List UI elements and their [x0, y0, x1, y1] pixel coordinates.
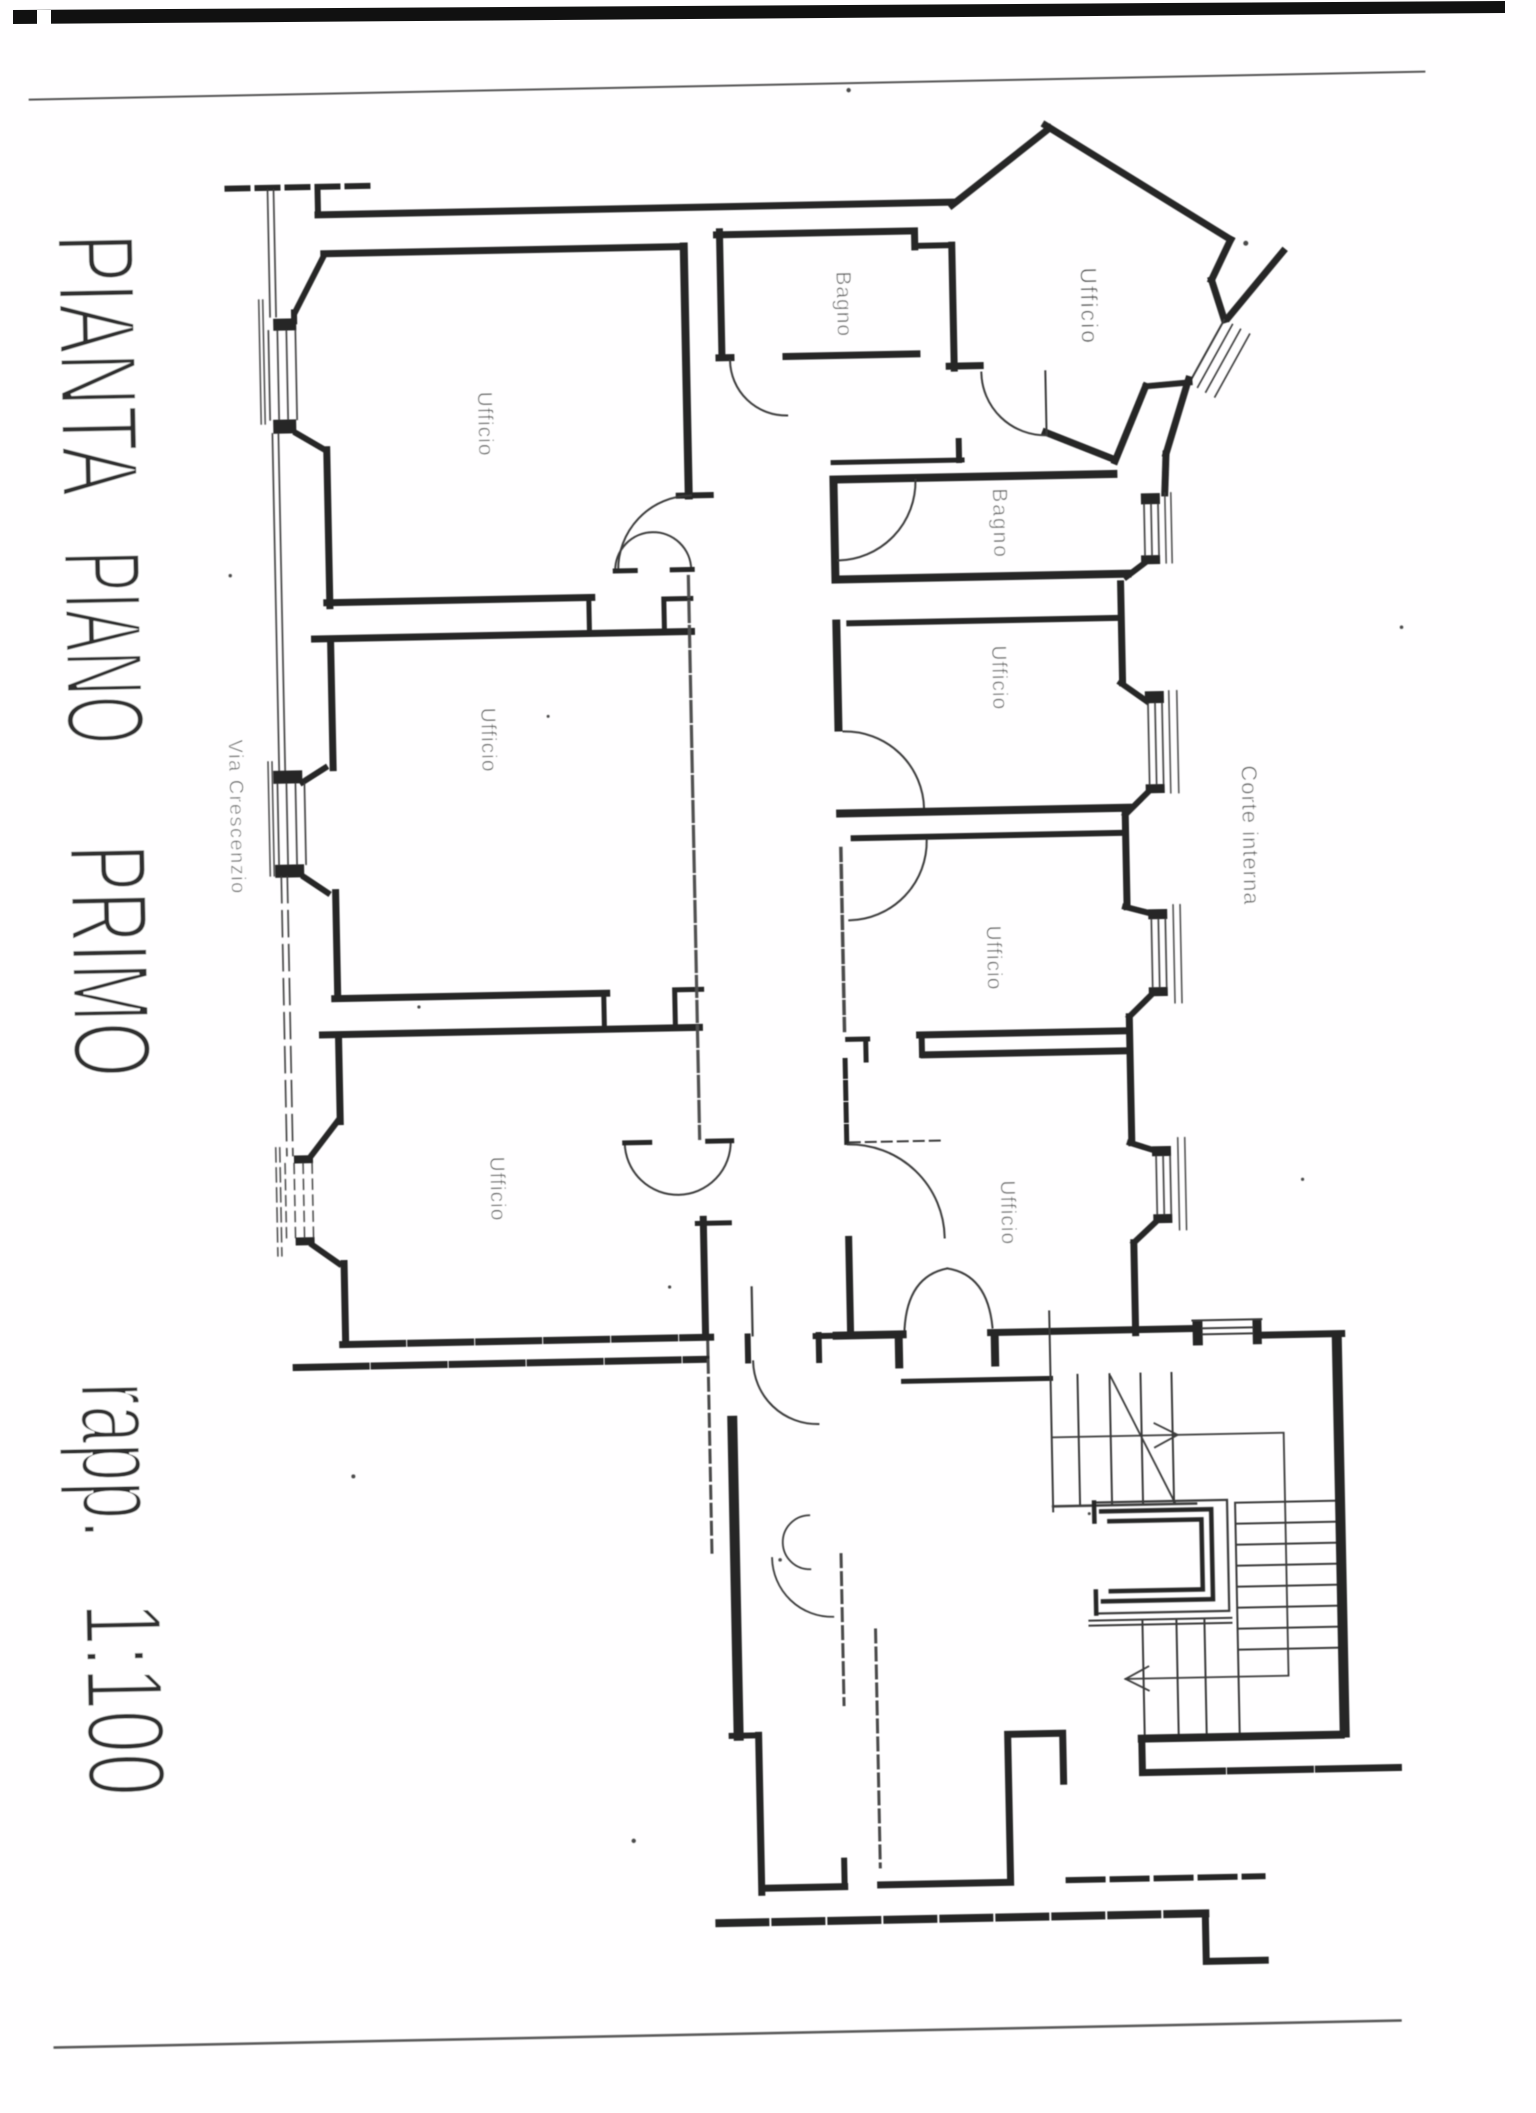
svg-text:Ufficio: Ufficio	[485, 1156, 509, 1221]
svg-text:Via Crescenzio: Via Crescenzio	[224, 739, 249, 895]
svg-text:Ufficio: Ufficio	[981, 925, 1005, 990]
svg-text:Ufficio: Ufficio	[1075, 267, 1103, 345]
svg-text:Ufficio: Ufficio	[476, 707, 500, 772]
svg-text:1:100: 1:100	[61, 1601, 188, 1797]
svg-text:PIANO: PIANO	[40, 549, 167, 745]
svg-text:rapp.: rapp.	[56, 1381, 182, 1539]
svg-text:Ufficio: Ufficio	[473, 391, 497, 456]
svg-text:PRIMO: PRIMO	[46, 843, 174, 1078]
svg-text:PIANTA: PIANTA	[33, 232, 161, 497]
svg-text:Ufficio: Ufficio	[987, 645, 1011, 710]
svg-text:Bagno: Bagno	[831, 271, 855, 337]
svg-text:Corte interna: Corte interna	[1236, 765, 1264, 906]
svg-text:Ufficio: Ufficio	[996, 1180, 1020, 1245]
svg-text:Bagno: Bagno	[988, 488, 1012, 559]
